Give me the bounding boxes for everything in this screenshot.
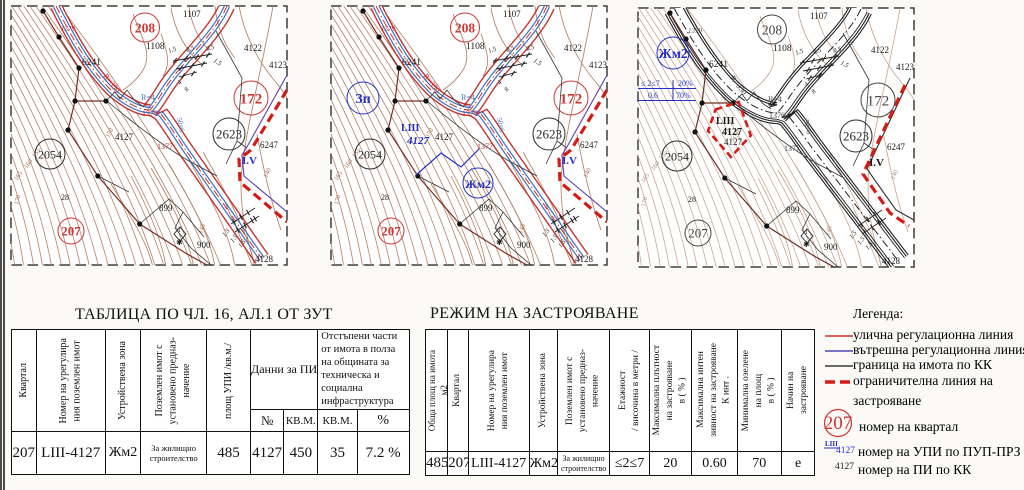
svg-text:1: 1 xyxy=(178,228,181,234)
svg-text:899: 899 xyxy=(786,205,800,215)
svg-text:6241: 6241 xyxy=(82,58,101,68)
svg-text:4127: 4127 xyxy=(836,446,855,456)
svg-text:4127: 4127 xyxy=(724,137,743,147)
svg-text:1379: 1379 xyxy=(61,25,76,33)
svg-text:4122: 4122 xyxy=(871,45,889,55)
svg-text:4122: 4122 xyxy=(244,43,262,53)
svg-text:4128: 4128 xyxy=(255,254,274,264)
svg-text:1376: 1376 xyxy=(142,109,158,118)
svg-text:2054: 2054 xyxy=(38,147,62,161)
svg-text:1377: 1377 xyxy=(784,144,800,153)
svg-text:28: 28 xyxy=(61,193,69,202)
svg-text:2054: 2054 xyxy=(665,149,689,163)
svg-text:1107: 1107 xyxy=(503,9,521,19)
svg-text:4127: 4127 xyxy=(435,132,454,142)
svg-text:2623: 2623 xyxy=(216,127,242,142)
svg-text:1377: 1377 xyxy=(477,142,493,151)
svg-text:1379: 1379 xyxy=(381,25,396,33)
svg-text:4127: 4127 xyxy=(835,462,854,472)
svg-text:6247: 6247 xyxy=(887,142,906,152)
svg-text:1376: 1376 xyxy=(769,111,785,120)
svg-text:899: 899 xyxy=(159,203,173,213)
svg-text:70%: 70% xyxy=(676,91,691,100)
svg-text:1376: 1376 xyxy=(462,109,478,118)
svg-text:Зп: Зп xyxy=(355,92,370,107)
svg-text:172: 172 xyxy=(240,91,263,107)
svg-text:207: 207 xyxy=(61,224,81,239)
svg-text:2623: 2623 xyxy=(536,127,562,142)
svg-text:6247: 6247 xyxy=(580,140,599,150)
svg-text:1108: 1108 xyxy=(773,44,792,54)
svg-text:4123: 4123 xyxy=(589,60,608,70)
svg-text:LIII: LIII xyxy=(401,123,419,134)
svg-text:✱: ✱ xyxy=(496,238,503,247)
svg-text:1107: 1107 xyxy=(810,11,828,21)
svg-text:0,6: 0,6 xyxy=(648,91,658,100)
svg-text:6241: 6241 xyxy=(402,58,421,68)
svg-text:28: 28 xyxy=(381,193,389,202)
svg-text:4128: 4128 xyxy=(575,254,594,264)
svg-text:208: 208 xyxy=(455,20,476,35)
svg-text:1108: 1108 xyxy=(466,42,485,52)
svg-text:1107: 1107 xyxy=(183,9,201,19)
svg-text:4127: 4127 xyxy=(406,135,430,147)
svg-text:1: 1 xyxy=(805,230,808,236)
svg-text:4123: 4123 xyxy=(896,62,915,72)
svg-text:1: 1 xyxy=(498,228,501,234)
svg-text:1108: 1108 xyxy=(146,42,165,52)
svg-text:4122: 4122 xyxy=(564,43,582,53)
svg-text:207: 207 xyxy=(688,226,708,241)
svg-text:2054: 2054 xyxy=(358,147,382,161)
svg-text:207: 207 xyxy=(824,413,853,434)
svg-text:Жм2: Жм2 xyxy=(658,46,688,61)
svg-text:✱: ✱ xyxy=(176,238,183,247)
svg-text:6247: 6247 xyxy=(260,140,279,150)
svg-text:I.V: I.V xyxy=(242,155,257,167)
svg-text:1379: 1379 xyxy=(688,27,703,35)
svg-text:Жм2: Жм2 xyxy=(465,177,491,191)
svg-text:2623: 2623 xyxy=(843,129,869,144)
svg-text:✱: ✱ xyxy=(803,240,810,249)
svg-text:4128: 4128 xyxy=(882,256,901,266)
svg-text:LIII: LIII xyxy=(716,116,734,127)
svg-text:I.V: I.V xyxy=(562,155,577,167)
svg-text:4127: 4127 xyxy=(115,132,134,142)
svg-text:899: 899 xyxy=(479,203,493,213)
svg-text:R=4: R=4 xyxy=(768,95,782,104)
svg-text:I.V: I.V xyxy=(869,157,884,169)
svg-text:207: 207 xyxy=(381,224,401,239)
svg-text:R=4: R=4 xyxy=(461,93,475,102)
svg-text:208: 208 xyxy=(135,20,156,35)
svg-text:900: 900 xyxy=(197,240,211,250)
svg-text:172: 172 xyxy=(560,91,583,107)
svg-text:≤ 2≤7: ≤ 2≤7 xyxy=(641,79,660,88)
svg-text:172: 172 xyxy=(867,93,890,109)
svg-text:900: 900 xyxy=(824,242,838,252)
svg-text:208: 208 xyxy=(762,22,783,37)
svg-text:20%: 20% xyxy=(678,79,693,88)
svg-text:6241: 6241 xyxy=(709,60,728,70)
svg-text:R=4: R=4 xyxy=(141,93,155,102)
svg-text:900: 900 xyxy=(517,240,531,250)
svg-text:1377: 1377 xyxy=(157,142,173,151)
svg-text:28: 28 xyxy=(688,195,696,204)
svg-text:4123: 4123 xyxy=(269,60,288,70)
